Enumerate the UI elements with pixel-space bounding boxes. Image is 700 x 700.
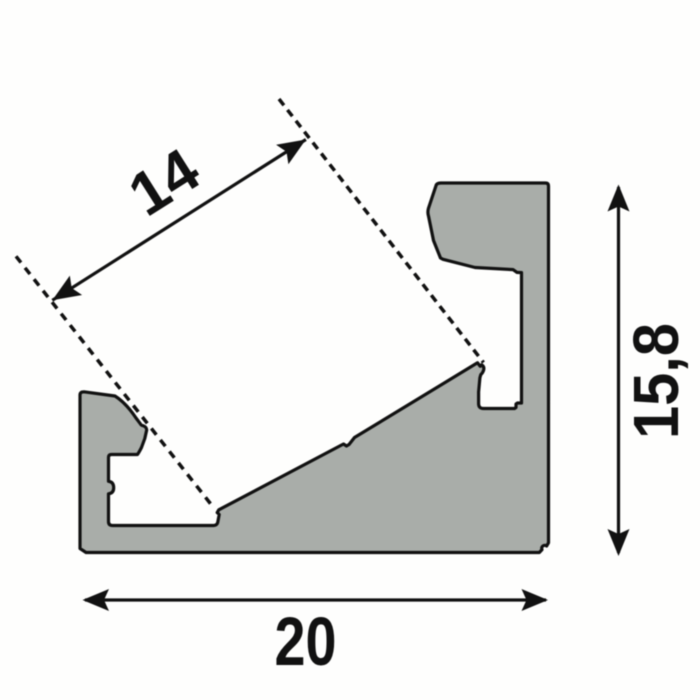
svg-text:20: 20: [275, 603, 337, 680]
svg-text:15,8: 15,8: [620, 323, 692, 439]
